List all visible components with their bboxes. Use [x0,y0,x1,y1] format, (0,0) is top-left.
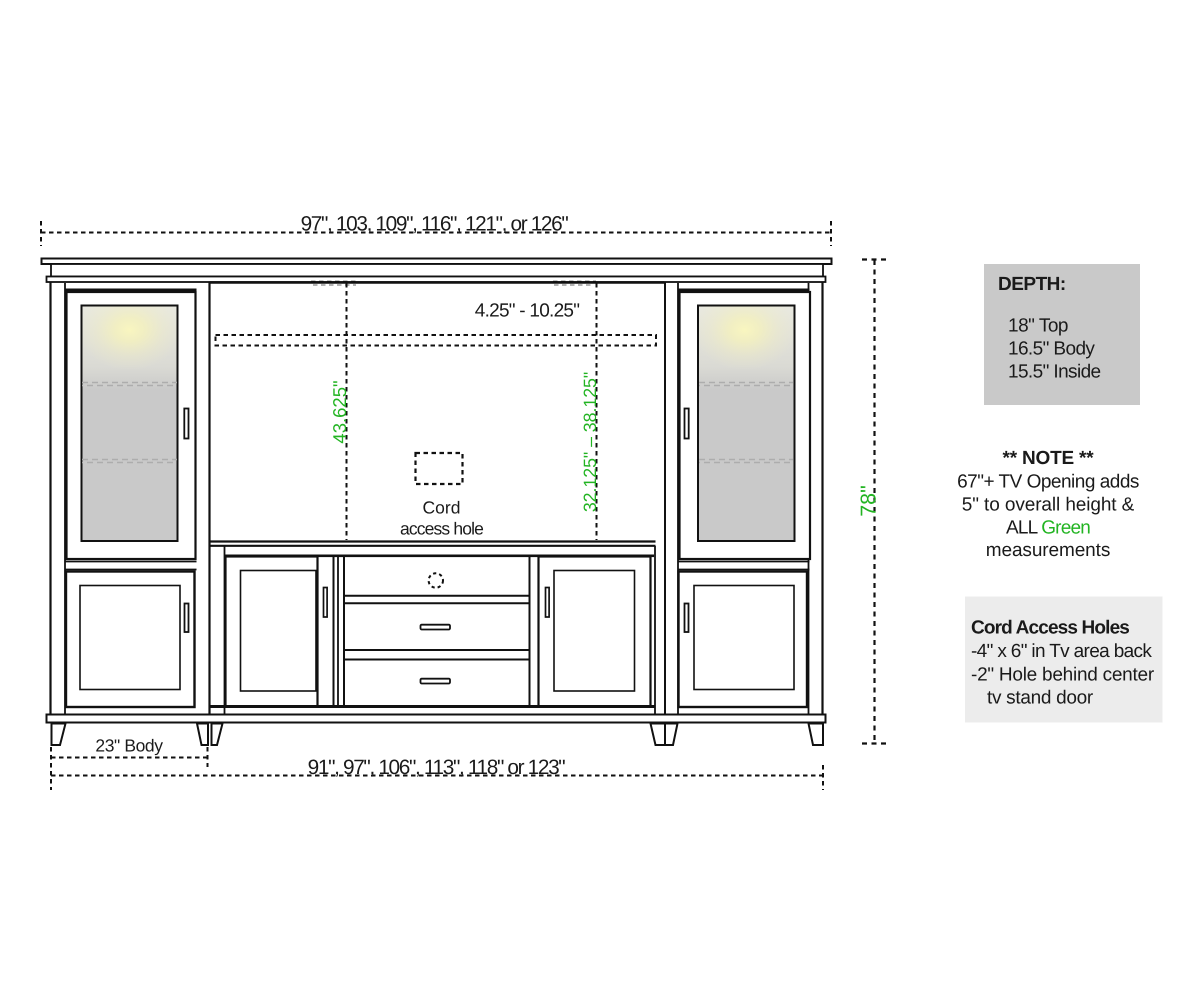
svg-text:32.125" – 38.125": 32.125" – 38.125" [580,372,600,512]
svg-text:18" Top: 18" Top [1008,316,1068,337]
svg-text:Cord: Cord [423,498,461,518]
svg-text:16.5" Body: 16.5" Body [1008,339,1095,360]
svg-text:Cord Access Holes: Cord Access Holes [971,618,1129,639]
svg-text:91", 97", 106", 113", 118" or: 91", 97", 106", 113", 118" or 123" [308,756,566,779]
svg-text:78": 78" [857,485,881,517]
svg-text:ALL Green: ALL Green [1006,518,1090,539]
svg-text:tv stand door: tv stand door [987,688,1094,709]
svg-text:measurements: measurements [986,540,1110,561]
svg-text:** NOTE **: ** NOTE ** [1003,448,1095,469]
svg-text:67"+ TV Opening adds: 67"+ TV Opening adds [957,472,1139,493]
svg-text:43.625": 43.625" [329,380,350,443]
svg-text:DEPTH:: DEPTH: [998,274,1066,295]
svg-text:4.25" - 10.25": 4.25" - 10.25" [475,301,579,322]
svg-text:97", 103, 109", 116", 121", or: 97", 103, 109", 116", 121", or 126" [301,213,569,236]
svg-text:-4" x 6" in Tv area back: -4" x 6" in Tv area back [971,641,1152,662]
svg-text:access hole: access hole [400,519,483,539]
svg-text:-2" Hole behind center: -2" Hole behind center [971,665,1155,686]
svg-text:5" to overall height &: 5" to overall height & [962,495,1135,516]
svg-text:15.5" Inside: 15.5" Inside [1008,362,1101,383]
svg-text:23" Body: 23" Body [95,736,163,756]
